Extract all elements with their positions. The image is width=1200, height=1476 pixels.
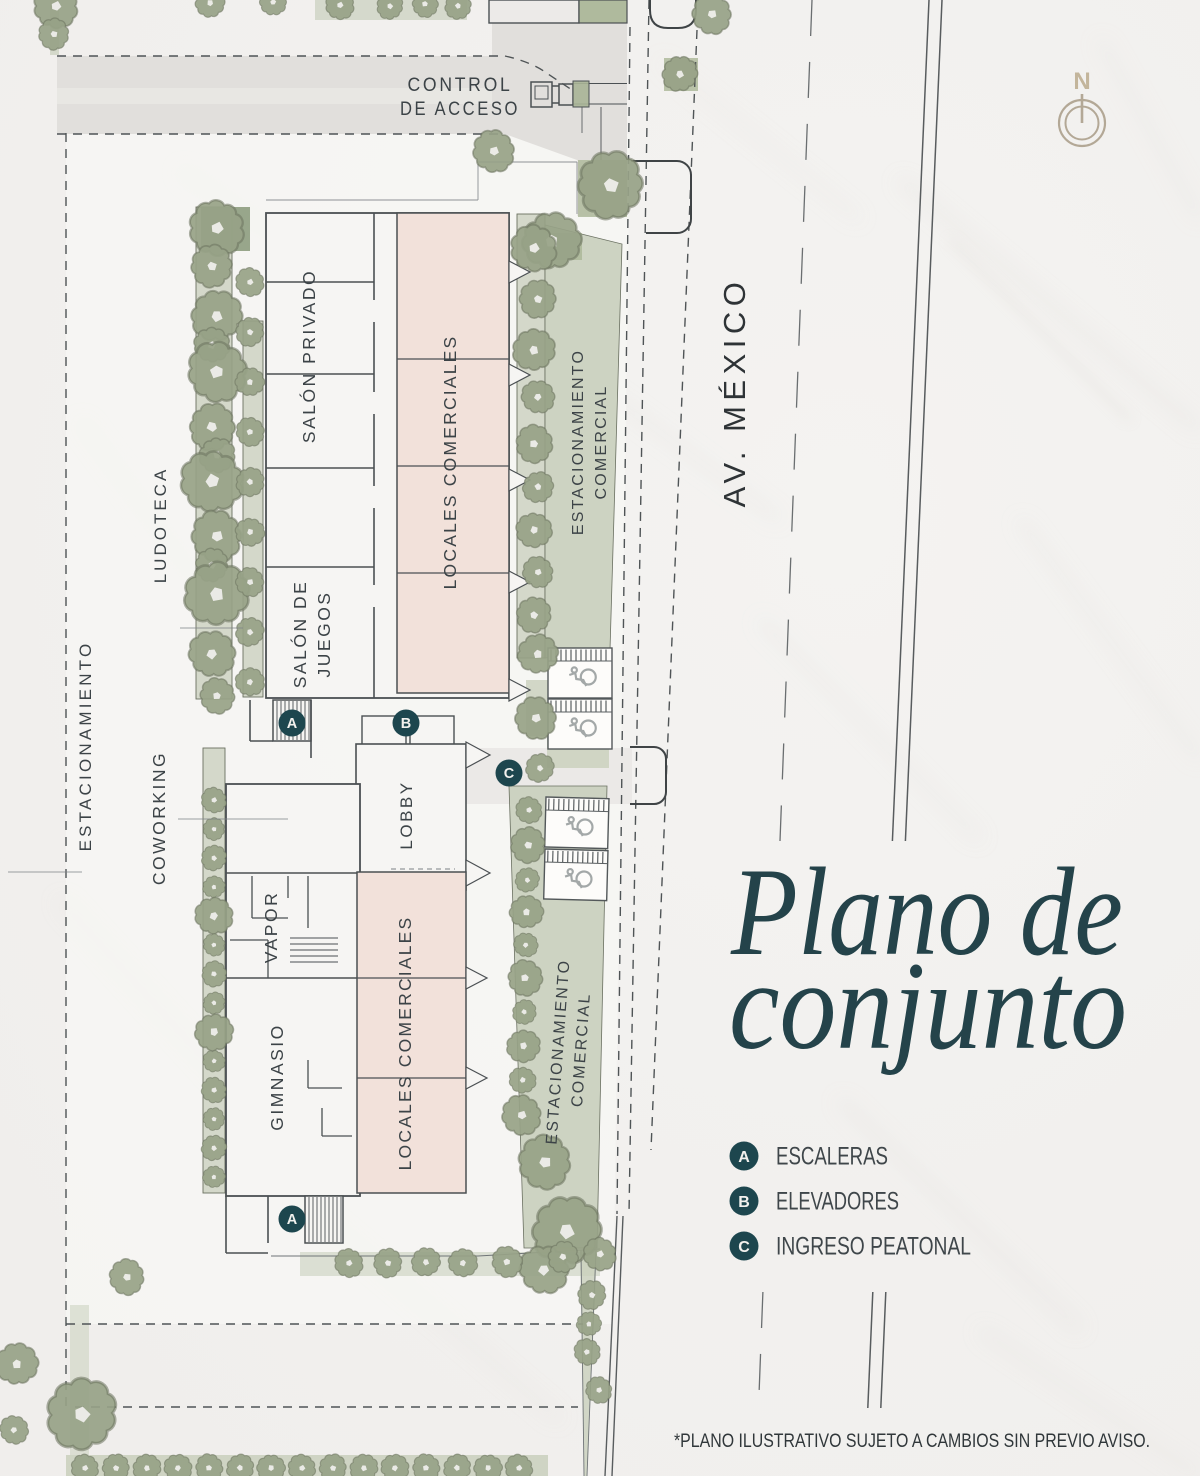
svg-text:LUDOTECA: LUDOTECA — [151, 467, 170, 584]
svg-text:A: A — [738, 1149, 750, 1166]
svg-text:DE ACCESO: DE ACCESO — [400, 98, 520, 120]
svg-text:COMERCIAL: COMERCIAL — [593, 385, 610, 500]
svg-text:*PLANO ILUSTRATIVO SUJETO A CA: *PLANO ILUSTRATIVO SUJETO A CAMBIOS SIN … — [674, 1431, 1150, 1452]
svg-text:INGRESO PEATONAL: INGRESO PEATONAL — [776, 1233, 971, 1261]
svg-text:GIMNASIO: GIMNASIO — [267, 1023, 287, 1131]
svg-text:SALÓN PRIVADO: SALÓN PRIVADO — [298, 269, 319, 443]
svg-text:SALÓN DE: SALÓN DE — [289, 580, 310, 689]
svg-text:LOCALES COMERCIALES: LOCALES COMERCIALES — [395, 916, 415, 1171]
svg-text:B: B — [738, 1194, 750, 1211]
svg-text:N: N — [1073, 68, 1090, 95]
svg-text:AV. MÉXICO: AV. MÉXICO — [717, 277, 752, 508]
svg-text:B: B — [401, 716, 411, 732]
svg-text:C: C — [504, 766, 515, 782]
svg-text:ESCALERAS: ESCALERAS — [776, 1143, 888, 1171]
svg-text:A: A — [287, 716, 298, 732]
svg-text:conjunto: conjunto — [729, 937, 1127, 1076]
svg-text:ESTACIONAMIENTO: ESTACIONAMIENTO — [570, 349, 587, 535]
svg-text:LOCALES COMERCIALES: LOCALES COMERCIALES — [440, 335, 460, 590]
svg-text:C: C — [738, 1239, 750, 1256]
svg-text:ESTACIONAMIENTO: ESTACIONAMIENTO — [76, 641, 95, 852]
svg-text:LOBBY: LOBBY — [397, 780, 416, 849]
svg-text:JUEGOS: JUEGOS — [314, 591, 334, 678]
svg-text:ELEVADORES: ELEVADORES — [776, 1188, 899, 1216]
svg-text:A: A — [287, 1212, 298, 1228]
svg-text:VAPOR: VAPOR — [261, 891, 281, 963]
svg-text:CONTROL: CONTROL — [408, 74, 513, 96]
svg-text:COWORKING: COWORKING — [149, 751, 169, 885]
